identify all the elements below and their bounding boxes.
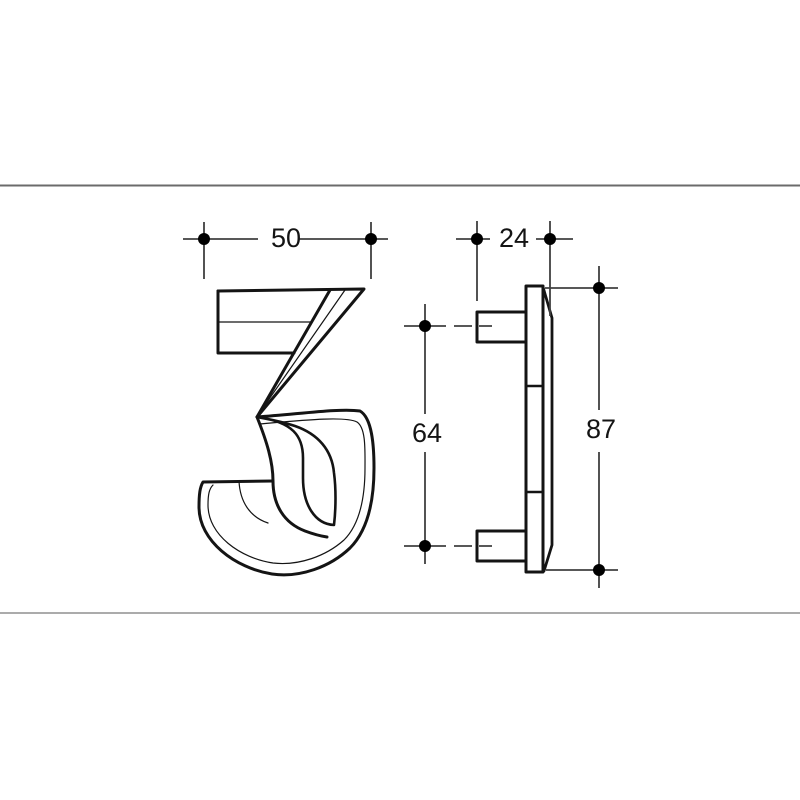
drawing-canvas: 50 24 64 87 [0,0,800,800]
dim-height-label: 87 [586,414,616,444]
marker-dot-width-left [198,233,210,245]
digit-outer-outline [199,289,374,575]
digit-arm-bevel [239,481,268,523]
digit-bowl-bevel [208,419,365,564]
digit-counter [257,417,336,525]
marker-dot-width-right [365,233,377,245]
marker-dot-depth-right [544,233,556,245]
front-view-digit-3 [199,289,374,575]
marker-dot-height-top [593,282,605,294]
technical-drawing: 50 24 64 87 [0,0,800,800]
dim-depth-label: 24 [499,223,529,253]
marker-dot-stud-bottom [419,540,431,552]
marker-dot-stud-top [419,320,431,332]
dim-stud-spacing-label: 64 [412,418,442,448]
marker-dot-height-bottom [593,564,605,576]
marker-dot-depth-left [471,233,483,245]
mounting-stud-top [477,312,526,342]
side-view-profile [477,286,552,572]
side-plate-body [526,286,543,572]
dim-width-label: 50 [271,223,301,253]
